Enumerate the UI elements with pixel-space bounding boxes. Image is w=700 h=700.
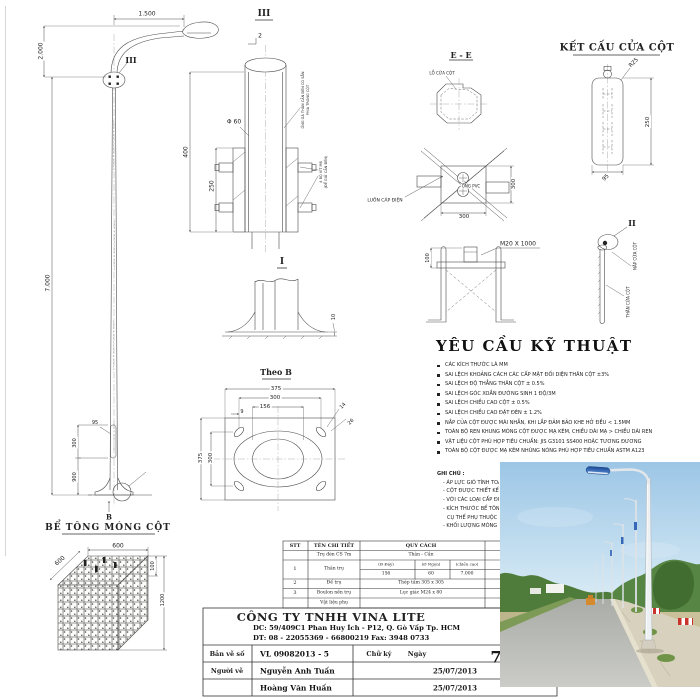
label-door-cover: NẮP CỬA CỘT bbox=[633, 242, 638, 270]
table-r1-val1: 156 bbox=[382, 572, 391, 577]
foundation-title: BỂ TÔNG MÓNG CỘT bbox=[45, 523, 171, 533]
photo-lamp-head bbox=[586, 466, 610, 475]
detail-iii-title: III bbox=[258, 9, 271, 19]
detail-i-title: I bbox=[280, 257, 284, 267]
requirements-list: CÁC KÍCH THƯỚC LÀ MM SAI LỆCH KHOẢNG CÁC… bbox=[437, 361, 700, 457]
photo-street-light bbox=[500, 462, 700, 687]
label-door-body: THÂN CỬA CỘT bbox=[626, 286, 631, 317]
label-anchor-bolt: M20 X 1000 bbox=[500, 241, 536, 248]
dim-250: 250 bbox=[209, 179, 216, 192]
notes-block: GHI CHÚ : - ÁP LỰC GIÓ TÍNH TOÁN - CỘT Đ… bbox=[437, 470, 499, 531]
table-header-ten: TÊN CHI TIẾT bbox=[314, 543, 354, 549]
drafter-name-1: Nguyễn Anh Tuấn bbox=[260, 666, 335, 675]
dim-375-v: 375 bbox=[198, 452, 204, 465]
dim-300-v: 300 bbox=[208, 452, 214, 465]
requirement-item: CÁC KÍCH THƯỚC LÀ MM bbox=[437, 361, 700, 371]
dim-9: 9 bbox=[239, 409, 244, 415]
field-date-label: Ngày bbox=[408, 650, 426, 658]
note-bolt-line2: (ĐỂ GIỮ CẦN ĐÈN) bbox=[324, 156, 328, 189]
dim-250-door: 250 bbox=[645, 116, 651, 129]
note-line: - VỚI CÁC LOẠI CẤP ĐIỆN bbox=[437, 496, 499, 505]
table-header-quycach: QUY CÁCH bbox=[406, 543, 437, 549]
table-r4-name: Vật liệu phụ bbox=[320, 601, 348, 606]
drafter-name-2: Hoàng Văn Huấn bbox=[260, 683, 332, 692]
field-drafter-label: Người vẽ bbox=[211, 667, 243, 675]
requirement-item: SAI LỆCH CHIỀU CAO CỘT ± 0.5% bbox=[437, 399, 700, 409]
drawing-number: VL 09082013 - 5 bbox=[260, 649, 329, 658]
door-structure-title: KẾT CẤU CỬA CỘT bbox=[560, 43, 675, 54]
note-line: - KHỐI LƯỢNG MÓNG CỘT bbox=[437, 522, 499, 531]
requirement-item: SAI LỆCH KHOẢNG CÁCH CÁC CẤP MẶT ĐỐI DIỆ… bbox=[437, 371, 700, 381]
requirement-item: SAI LỆCH ĐỘ THẲNG THÂN CỘT ± 0.5% bbox=[437, 380, 700, 390]
table-r3-stt: 3 bbox=[293, 590, 296, 596]
dim-900: 900 bbox=[72, 471, 78, 483]
requirement-item: SAI LỆCH CHIỀU CAO ĐẶT ĐÈN ± 1.2% bbox=[437, 409, 700, 419]
drawing-sheet: 1.500 2.000 III 7.000 95 300 900 B BỂ TÔ… bbox=[0, 0, 700, 700]
date-2: 25/07/2013 bbox=[433, 683, 477, 692]
label-door-hole: LỖ CỬA CỘT bbox=[429, 71, 454, 76]
dim-arm-length: 1.500 bbox=[138, 11, 155, 18]
detail-ref-III: III bbox=[125, 55, 136, 65]
field-drawing-no-label: Bản vẽ số bbox=[210, 650, 245, 658]
ref-2: 2 bbox=[258, 33, 262, 40]
requirements-title: YÊU CẦU KỸ THUẬT bbox=[436, 337, 700, 355]
table-r2-spec: Thép tấm 305 x 305 bbox=[398, 581, 444, 586]
requirement-item: TOÀN BỘ CỘT ĐƯỢC MẠ KẼM NHÚNG NÓNG PHÙ H… bbox=[437, 447, 700, 457]
table-header-stt: STT bbox=[290, 543, 301, 549]
date-1: 25/07/2013 bbox=[433, 666, 477, 675]
dim-156: 156 bbox=[259, 404, 272, 410]
table-r1-col1: (Ø Đáy) bbox=[378, 562, 394, 567]
dim-300-plan-h: 300 bbox=[458, 214, 471, 220]
dim-95: 95 bbox=[92, 420, 98, 426]
company-name: CÔNG TY TNHH VINA LITE bbox=[237, 610, 426, 624]
table-r1-name: Thân trụ bbox=[324, 567, 344, 572]
company-phone: DT: 08 - 22055369 - 66800219 Fax: 3948 0… bbox=[253, 634, 429, 642]
dim-375-h: 375 bbox=[270, 386, 283, 392]
note-line: - ÁP LỰC GIÓ TÍNH TOÁN bbox=[437, 479, 499, 488]
dim-400: 400 bbox=[183, 145, 190, 158]
company-address: DC: 59/409C1 Phan Huy Ích - P12, Q. Gò V… bbox=[253, 624, 460, 632]
table-r1-val3: 7.000 bbox=[461, 572, 474, 577]
detail-ii-title: II bbox=[628, 218, 635, 228]
dim-10: 10 bbox=[331, 313, 337, 321]
note-sleeve-line1: ỐNG GÁ THÂN CẦN ĐÈN CÓ SẴN bbox=[301, 71, 305, 128]
note-line: - CỘT ĐƯỢC THIẾT KẾ VỚI bbox=[437, 487, 499, 496]
dim-100-cage: 100 bbox=[425, 252, 431, 264]
table-r1-val2: 60 bbox=[428, 572, 434, 577]
table-r2-name: Đế trụ bbox=[327, 581, 342, 586]
table-product-name: Trụ đèn CS 7m bbox=[317, 553, 351, 558]
dim-300-h: 300 bbox=[269, 395, 282, 401]
notes-title: GHI CHÚ : bbox=[437, 470, 499, 479]
dim-pole-height: 7.000 bbox=[45, 273, 52, 292]
table-r3-spec: Lục giác M24 x 80 bbox=[400, 591, 442, 596]
requirement-item: TOÀN BỘ REN KHUNG MÓNG CỘT ĐƯỢC MẠ KẼM, … bbox=[437, 428, 700, 438]
label-cable-duct: LUỒN CÁP ĐIỆN bbox=[367, 199, 402, 204]
table-r1-col3: (chiều cao) bbox=[456, 562, 479, 567]
requirement-item: VẬT LIỆU CỘT PHÙ HỢP TIÊU CHUẨN: JIS G31… bbox=[437, 438, 700, 448]
theo-b-title: Theo B bbox=[260, 367, 292, 377]
dim-cube-600-top: 600 bbox=[112, 543, 123, 550]
requirement-item: NẮP CỦA CỘT ĐƯỢC MÀI NHẴN, KHI LẮP ĐẢM B… bbox=[437, 419, 700, 429]
technical-requirements: YÊU CẦU KỸ THUẬT CÁC KÍCH THƯỚC LÀ MM SA… bbox=[436, 337, 700, 457]
dim-cube-1200: 1200 bbox=[160, 593, 166, 608]
note-line: CỤ THỂ PHỤ THUỘC VÀO NỀN bbox=[437, 514, 499, 523]
dim-arm-height: 2.000 bbox=[38, 41, 45, 60]
note-sleeve-line2: PHÍA TRONG CỘT bbox=[306, 85, 310, 115]
dim-300: 300 bbox=[72, 437, 78, 449]
table-r2-stt: 2 bbox=[293, 580, 296, 586]
dim-phi60: Φ 60 bbox=[226, 119, 242, 126]
table-r3-name: Boulon nền trụ bbox=[317, 591, 351, 596]
table-r1-col2: (Ø Ngọn) bbox=[422, 562, 441, 567]
note-line: - KÍCH THƯỚC BỂ TÔNG MÓNG bbox=[437, 505, 499, 514]
label-pvc-pipe: ỐNG PVC bbox=[461, 184, 481, 189]
requirement-item: SAI LỆCH GÓC XOẮN ĐƯỜNG SINH 1 ĐỘ/3M bbox=[437, 390, 700, 400]
note-bolt-line1: 4 BỘ VÍT M8 bbox=[319, 161, 323, 183]
dim-cube-100: 100 bbox=[150, 560, 156, 572]
table-r1-stt: 1 bbox=[293, 566, 296, 572]
table-product-spec: Thân - Cần bbox=[409, 553, 434, 558]
detail-ref-B: B bbox=[106, 513, 112, 522]
section-ee-title: E - E bbox=[450, 50, 471, 60]
dim-300-plan-v: 300 bbox=[511, 178, 517, 191]
field-signature-label: Chữ ký bbox=[366, 650, 391, 658]
